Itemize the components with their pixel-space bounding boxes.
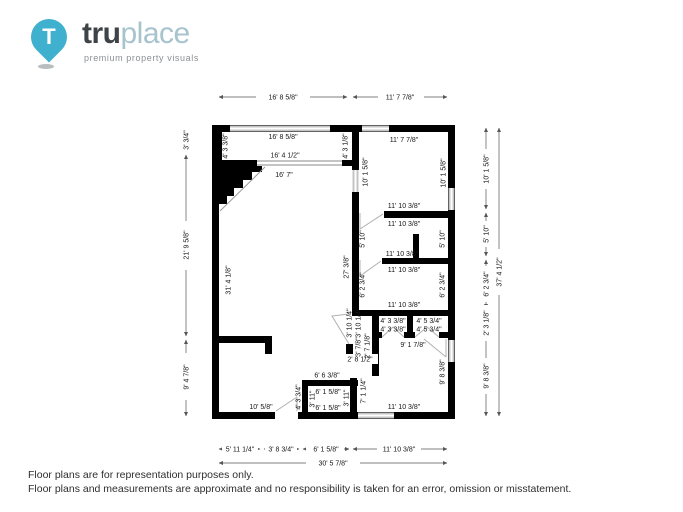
dim-label: 10' 1 5/8" [484,154,491,184]
room-dim: 16' 7" [275,172,293,179]
room-dim: 16' 4 1/2" [270,153,300,160]
dim-label: 6' 1 5/8" [313,447,339,454]
dim-label: 2' 3 1/8" [484,310,491,336]
room-dim: 11' 10 3/8" [388,302,421,309]
room-dim: 4' 5 3/4" [416,318,442,325]
room-dim: 31' 4 1/8" [226,265,233,295]
room-dim: 11' 10 3/8" [388,221,421,228]
room-dim: 4' 3 3/8" [380,318,406,325]
room-dim: 4' 3 1/8" [343,133,350,159]
dim-label: 5' 10" [484,225,491,243]
room-dim: 6' 1 5/8" [315,405,341,412]
dim-label: 30' 5 7/8" [318,461,348,468]
room-dim: 3' 11" [344,389,351,406]
room-dim: 2' 8 1/2" [347,357,373,364]
room-dim: 11' 10 3/8" [386,251,419,258]
room-dim: 7' 1 1/4" [361,378,368,404]
floor-plan: 16' 8 5/8" 11' 7 7/8" 3' 3/4" 21' 9 5/8"… [0,0,683,512]
disclaimer-line-1: Floor plans are for representation purpo… [28,468,571,482]
door-entry [276,397,297,411]
room-dim: 16' 8 5/8" [268,134,298,141]
disclaimer-line-2: Floor plans and measurements are approxi… [28,482,571,496]
room-dim: 11' 10 3/8" [388,203,421,210]
dim-label: 9' 8 3/8" [484,363,491,389]
dim-label: 21' 9 5/8" [184,230,191,260]
dim-label: 5' 11 1/4" [226,447,255,454]
dim-label: 3' 8 3/4" [268,447,294,454]
room-dim: 6' 2 3/4" [360,272,367,298]
room-dim: 11' 7 7/8" [390,137,419,144]
page: T truplace premium property visuals [0,0,683,512]
room-dim: 6' 1 5/8" [315,389,341,396]
room-dim: 6' 2 3/4" [440,272,447,298]
disclaimer: Floor plans are for representation purpo… [28,468,571,496]
room-dim: 11' 10 3/8" [388,267,421,274]
room-dim: 4' 3 3/8" [380,327,406,334]
door-bedroom2 [424,339,446,357]
room-dim: 27' 3/8" [344,255,351,279]
room-dim: 5' 10" [360,230,367,248]
dim-label: 9' 4 7/8" [184,364,191,390]
room-dim: 4' 3 3/4" [296,384,303,410]
stairs [219,166,262,204]
dim-label: 11' 7 7/8" [386,95,415,102]
room-dim: 5' 10" [440,230,447,248]
room-dim: 4' 5 3/4" [416,327,442,334]
room-dim: 10' 1 5/8" [441,158,448,188]
room-dim: 4' 3 3/8" [223,133,230,159]
room-dim: 10' 1 5/8" [363,157,370,187]
dim-label: 16' 8 5/8" [268,95,298,102]
windows [230,126,455,419]
room-dim: 6' 6 3/8" [314,373,340,380]
dim-label: 3' 3/4" [184,130,191,150]
room-dim: 2' 7 1/8" [365,333,372,359]
room-dim: 10' 5/8" [249,404,273,411]
dim-label: 11' 10 3/8" [383,447,416,454]
room-dim: 9' 8 3/8" [440,359,447,385]
room-dim: 9' 1 7/8" [400,342,426,349]
room-dim: 3' 10 1/4" [347,308,354,338]
room-dim: 3' 11" [310,390,317,407]
dim-label: 6' 2 3/4" [484,271,491,297]
room-dim: 11' 10 3/8" [388,404,421,411]
dim-label: 37' 4 1/2" [497,257,504,287]
labels: 16' 8 5/8" 11' 7 7/8" 3' 3/4" 21' 9 5/8"… [184,95,504,468]
room-dim: 3' 10 1/4" [356,308,363,338]
door-bedroom1 [360,213,383,229]
room-dim: 3' 7/8" [356,337,363,357]
